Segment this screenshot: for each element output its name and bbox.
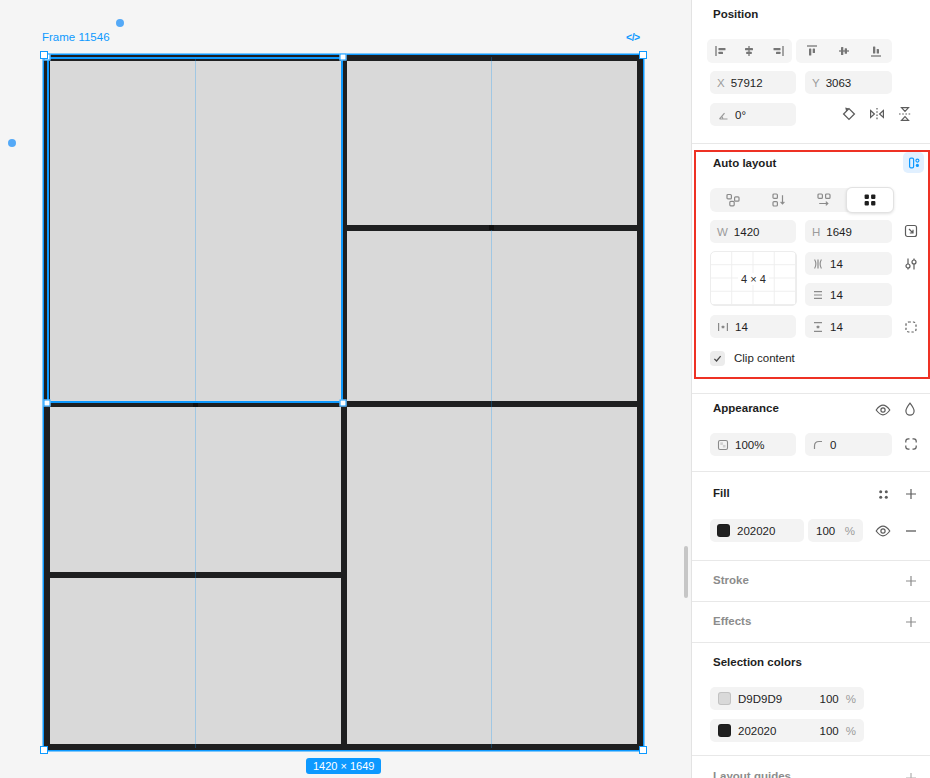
column-gap-value: 14 (830, 258, 843, 270)
row-gap-icon (812, 289, 824, 301)
vertical-padding-icon (812, 321, 824, 333)
selection-color-hex: 202020 (738, 725, 776, 737)
layout-flow-grid-button[interactable] (846, 187, 894, 213)
selection-color-swatch[interactable] (718, 692, 731, 705)
column-gap-field[interactable]: 14 (805, 252, 892, 275)
cell-selection-handle[interactable] (44, 400, 51, 407)
frame-selection-handle[interactable] (639, 51, 647, 59)
selection-color-hex: D9D9D9 (738, 693, 782, 705)
styles-library-icon[interactable] (876, 487, 891, 502)
section-divider (692, 471, 930, 472)
row-gap-value: 14 (830, 289, 843, 301)
selection-color-opacity: 100 (820, 725, 839, 737)
opacity-field[interactable]: 100% (710, 433, 796, 456)
position-section-title: Position (713, 8, 758, 20)
align-right-icon[interactable] (771, 44, 785, 58)
x-field-value: 57912 (731, 77, 763, 89)
canvas-scrollbar[interactable] (684, 546, 688, 598)
frame-selection-handle[interactable] (40, 51, 48, 59)
align-top-icon[interactable] (805, 44, 819, 58)
appearance-section-title: Appearance (713, 402, 779, 414)
corner-radius-icon (812, 439, 824, 451)
dev-mode-code-icon[interactable]: </> (626, 31, 640, 43)
selected-grid-cell-outline[interactable] (47, 57, 343, 403)
fill-hex-field[interactable]: 202020 (710, 519, 804, 542)
auto-layout-section-title: Auto layout (713, 157, 776, 169)
add-effect-icon[interactable] (903, 614, 919, 630)
percent-sign: % (846, 693, 856, 705)
selection-color-row[interactable]: D9D9D9 100 % (710, 687, 864, 710)
clip-content-label[interactable]: Clip content (734, 352, 795, 364)
visibility-eye-icon[interactable] (874, 401, 892, 419)
selection-color-opacity: 100 (820, 693, 839, 705)
width-field-label: W (717, 226, 728, 238)
row-gap-field[interactable]: 14 (805, 283, 892, 306)
selected-frame[interactable] (44, 55, 643, 750)
horizontal-padding-field[interactable]: 14 (710, 315, 796, 338)
add-fill-icon[interactable] (903, 486, 919, 502)
align-bottom-icon[interactable] (869, 44, 883, 58)
individual-corners-icon[interactable] (903, 436, 919, 452)
selection-size-badge: 1420 × 1649 (306, 758, 381, 774)
add-layout-guide-icon[interactable] (903, 770, 919, 778)
section-divider (692, 755, 930, 756)
auto-layout-applied-icon[interactable] (903, 152, 924, 173)
grid-size-value: 4 × 4 (738, 273, 769, 285)
y-field-value: 3063 (826, 77, 852, 89)
frame-selection-handle[interactable] (40, 746, 48, 754)
fill-opacity-value: 100 (816, 525, 835, 537)
align-left-icon[interactable] (714, 44, 728, 58)
fill-color-swatch[interactable] (717, 524, 730, 537)
rotation-field[interactable]: 0° (710, 103, 796, 126)
stroke-section-title: Stroke (713, 574, 749, 586)
layout-flow-horizontal-button[interactable] (802, 188, 848, 212)
cell-selection-handle[interactable] (340, 400, 347, 407)
horizontal-padding-value: 14 (735, 321, 748, 333)
layout-flow-vertical-button[interactable] (756, 188, 802, 212)
grid-cell[interactable] (347, 407, 637, 744)
horizontal-padding-icon (717, 321, 729, 333)
height-field-label: H (812, 226, 820, 238)
layout-flow-freeform-button[interactable] (710, 188, 756, 212)
properties-panel: Position X 57912 Y 3063 0° Au (691, 0, 930, 778)
alignment-settings-icon[interactable] (903, 256, 919, 272)
section-divider (692, 560, 930, 561)
corner-radius-field[interactable]: 0 (805, 433, 892, 456)
x-field-label: X (717, 77, 725, 89)
height-field-value: 1649 (826, 226, 852, 238)
cell-selection-handle[interactable] (340, 54, 347, 61)
canvas[interactable]: Frame 11546 </> 1420 × 1649 (0, 0, 691, 778)
selection-color-row[interactable]: 202020 100 % (710, 719, 864, 742)
resize-to-fit-icon[interactable] (903, 223, 919, 239)
frame-name-label[interactable]: Frame 11546 (42, 31, 110, 43)
canvas-blue-dot (116, 19, 124, 27)
fill-percent-sign: % (845, 525, 855, 537)
flip-vertical-icon[interactable] (895, 104, 915, 124)
x-position-field[interactable]: X 57912 (710, 71, 796, 94)
blend-mode-droplet-icon[interactable] (902, 401, 918, 417)
remove-fill-icon[interactable] (903, 523, 919, 539)
grid-gap-nub (489, 225, 494, 230)
opacity-icon (717, 439, 729, 451)
vertical-padding-field[interactable]: 14 (805, 315, 892, 338)
grid-cell[interactable] (347, 231, 637, 401)
width-field-value: 1420 (734, 226, 760, 238)
canvas-blue-dot (8, 139, 16, 147)
selection-colors-section-title: Selection colors (713, 656, 802, 668)
rotate-icon[interactable] (839, 104, 859, 124)
horizontal-align-group (707, 39, 792, 63)
align-horizontal-center-icon[interactable] (742, 44, 756, 58)
corner-radius-value: 0 (830, 439, 836, 451)
angle-icon (717, 109, 729, 121)
y-position-field[interactable]: Y 3063 (805, 71, 892, 94)
width-field[interactable]: W 1420 (710, 220, 796, 243)
clip-content-checkbox[interactable] (710, 351, 725, 366)
individual-padding-icon[interactable] (903, 319, 919, 335)
effects-section-title: Effects (713, 615, 751, 627)
flip-horizontal-icon[interactable] (867, 104, 887, 124)
add-stroke-icon[interactable] (903, 573, 919, 589)
vertical-padding-value: 14 (830, 321, 843, 333)
percent-sign: % (846, 725, 856, 737)
section-divider (692, 642, 930, 643)
section-divider (692, 143, 930, 144)
vertical-align-group (796, 39, 892, 63)
section-divider (692, 601, 930, 602)
rotation-value: 0° (735, 109, 746, 121)
fill-section-title: Fill (713, 487, 730, 499)
layout-flow-segmented-control (710, 188, 893, 212)
selection-color-swatch[interactable] (718, 724, 731, 737)
fill-opacity-field[interactable]: 100 % (808, 519, 863, 542)
section-divider (692, 393, 930, 394)
fill-visibility-eye-icon[interactable] (874, 522, 892, 540)
opacity-value: 100% (735, 439, 764, 451)
grid-track-guide (491, 57, 492, 748)
y-field-label: Y (812, 77, 820, 89)
layout-guides-section-title: Layout guides (713, 770, 791, 778)
column-gap-icon (812, 258, 824, 270)
align-vertical-center-icon[interactable] (837, 44, 851, 58)
grid-cell[interactable] (347, 61, 637, 225)
height-field[interactable]: H 1649 (805, 220, 892, 243)
grid-size-preview[interactable]: 4 × 4 (710, 251, 797, 306)
fill-hex-value: 202020 (737, 525, 775, 537)
frame-selection-handle[interactable] (639, 746, 647, 754)
